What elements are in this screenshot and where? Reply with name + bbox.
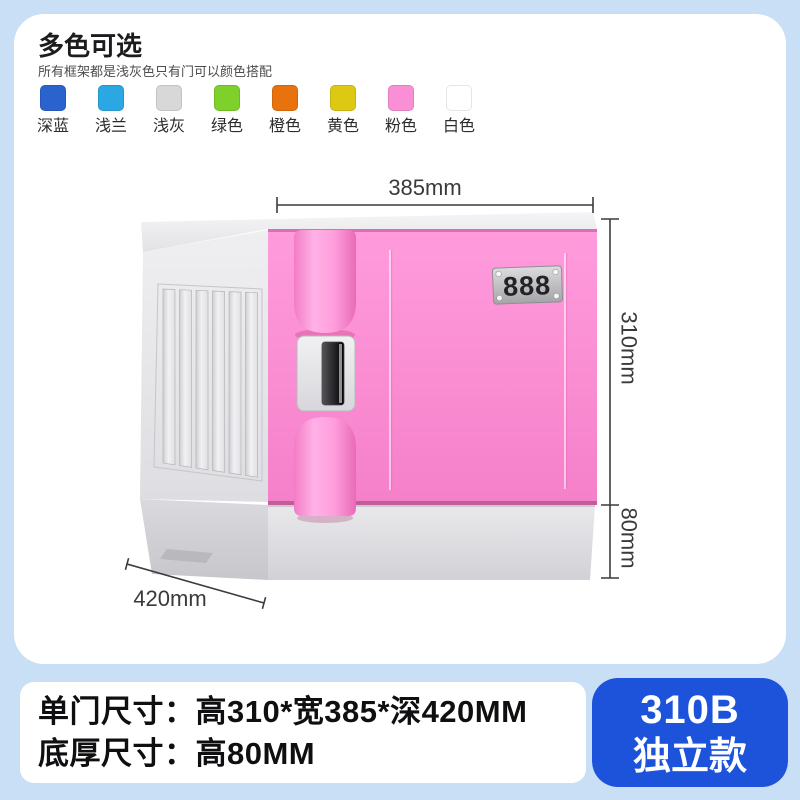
dimension-width-label: 385mm <box>388 175 461 200</box>
dimension-height-label: 310mm <box>616 311 641 384</box>
plate-rivet <box>553 269 559 275</box>
dimension-depth-label: 420mm <box>133 586 206 611</box>
plate-rivet <box>496 271 502 277</box>
door-number-text: 888 <box>502 270 551 302</box>
spec-door-size: 单门尺寸：高310*宽385*深420MM <box>38 692 527 732</box>
locker-base-side <box>140 499 268 580</box>
product-infographic: 多色可选 所有框架都是浅灰色只有门可以颜色搭配 深蓝 浅兰 浅灰 绿色 橙色 黄… <box>0 0 800 800</box>
spec-base-size: 底厚尺寸：高80MM <box>38 734 315 774</box>
door-hinge-top-icon <box>294 230 356 333</box>
model-badge: 310B 独立款 <box>592 678 788 787</box>
dimension-base-height-label: 80mm <box>616 507 641 568</box>
door-handle <box>297 336 355 411</box>
model-number: 310B <box>640 686 740 734</box>
spec-panel: 单门尺寸：高310*宽385*深420MM 底厚尺寸：高80MM <box>20 682 586 783</box>
model-variant: 独立款 <box>633 734 747 780</box>
page-background: { "page": { "background": "#c9dff6" }, "… <box>0 0 800 800</box>
door-number-plate: 888 <box>492 266 562 304</box>
plate-rivet <box>497 295 503 301</box>
door-hinge-bottom-icon <box>294 417 356 516</box>
plate-rivet <box>554 293 560 299</box>
